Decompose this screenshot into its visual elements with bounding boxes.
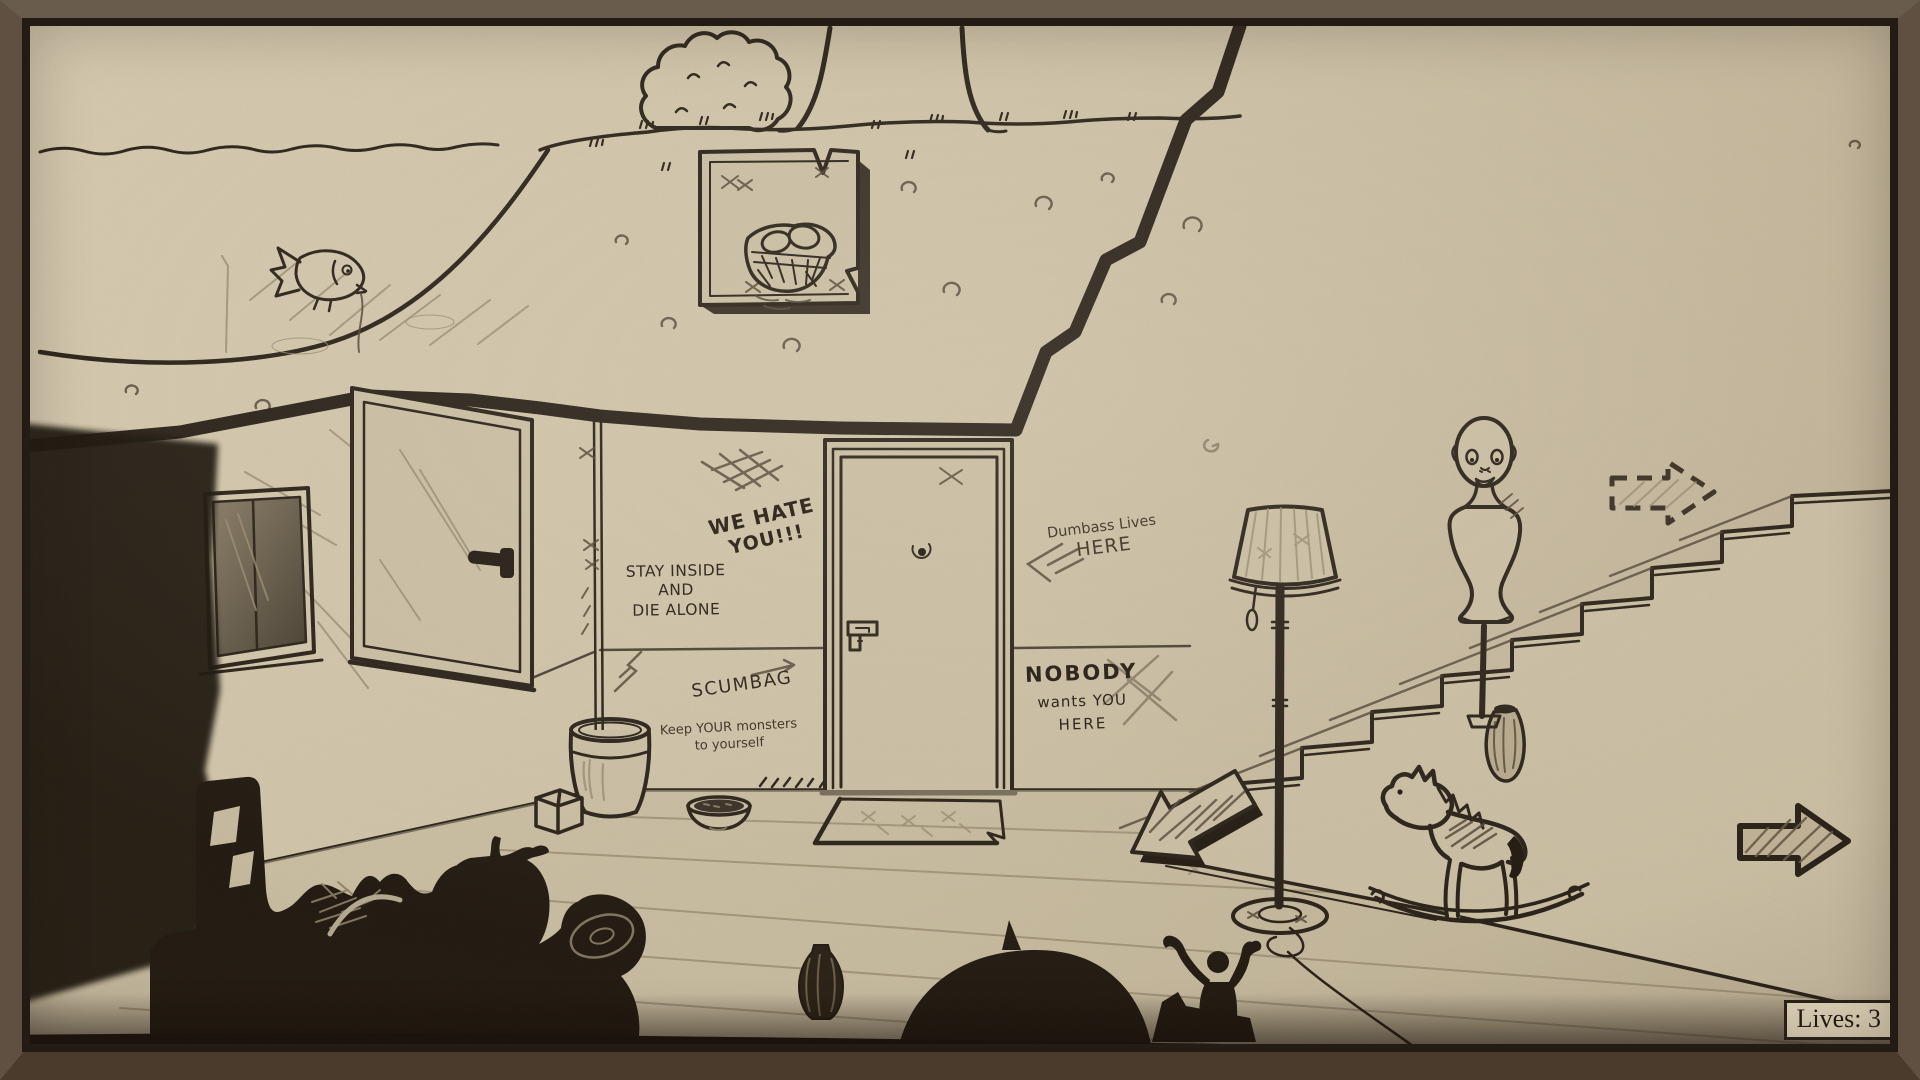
scene-art: .ink{fill:none;stroke:#2b221a;stroke-lin… bbox=[0, 0, 1920, 1080]
lives-counter: Lives: 3 bbox=[1784, 1000, 1895, 1040]
paper-grain bbox=[0, 0, 1920, 1080]
scene: .ink{fill:none;stroke:#2b221a;stroke-lin… bbox=[0, 0, 1920, 1080]
game-stage: .ink{fill:none;stroke:#2b221a;stroke-lin… bbox=[0, 0, 1920, 1080]
